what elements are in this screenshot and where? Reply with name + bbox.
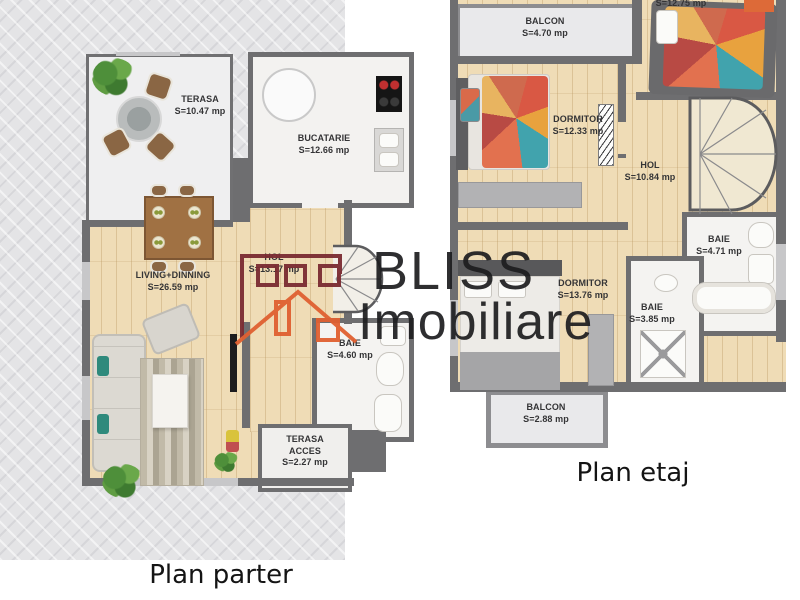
plate bbox=[152, 206, 165, 219]
living-plant bbox=[102, 464, 144, 498]
room-area: S=4.71 mp bbox=[690, 246, 748, 258]
window bbox=[776, 244, 786, 300]
wall-segment bbox=[456, 222, 628, 230]
kitchen-sink-bowl bbox=[379, 133, 399, 148]
room-name: DORMITOR bbox=[542, 114, 614, 126]
bed-duvet bbox=[663, 6, 766, 89]
room-label-dormitor-1233: DORMITOR S=12.33 mp bbox=[542, 114, 614, 137]
room-area: S=10.84 mp bbox=[616, 172, 684, 184]
bed-duvet bbox=[482, 76, 548, 168]
room-area: S=10.47 mp bbox=[164, 106, 236, 118]
bed-pillow bbox=[656, 10, 678, 44]
terrace-window bbox=[116, 52, 180, 56]
shower bbox=[640, 330, 686, 378]
wardrobe bbox=[458, 182, 582, 208]
room-name: TERASA bbox=[164, 94, 236, 106]
coffee-table bbox=[152, 374, 188, 428]
kitchen-table bbox=[262, 68, 316, 122]
room-name: DORMITOR bbox=[548, 278, 618, 290]
dining-chair bbox=[178, 184, 196, 197]
room-label-bucatarie: BUCATARIE S=12.66 mp bbox=[286, 133, 362, 156]
room-name: LIVING+DINNING bbox=[106, 270, 240, 282]
dresser-orange bbox=[744, 0, 774, 12]
room-area: S=26.59 mp bbox=[106, 282, 240, 294]
room-label-hol-etaj: HOL S=10.84 mp bbox=[616, 160, 684, 183]
bathtub bbox=[692, 282, 776, 314]
decor-toy bbox=[226, 430, 239, 452]
bed-blanket bbox=[460, 352, 560, 390]
watermark-brand-line1: BLISS bbox=[372, 244, 535, 298]
room-name: BAIE bbox=[624, 302, 680, 314]
room-label-terasa-acces: TERASA ACCES S=2.27 mp bbox=[264, 434, 346, 469]
floorplan-canvas: TERASA S=10.47 mp BUCATARIE S=12.66 mp L… bbox=[0, 0, 800, 600]
toilet bbox=[748, 222, 774, 248]
living-plant bbox=[214, 452, 240, 472]
cooktop bbox=[376, 76, 402, 112]
kitchen-sink-bowl bbox=[379, 152, 399, 167]
bathroom-sink bbox=[654, 274, 678, 292]
plan-parter-title: Plan parter bbox=[118, 560, 324, 590]
room-label-dormitor-cut: S=12.75 mp bbox=[646, 0, 716, 10]
watermark-brand-line2: Imobiliare bbox=[358, 296, 593, 348]
terrace-plant bbox=[92, 58, 136, 96]
room-label-terasa: TERASA S=10.47 mp bbox=[164, 94, 236, 117]
room-name: BAIE bbox=[690, 234, 748, 246]
plate bbox=[188, 236, 201, 249]
bliss-logo-house-icon bbox=[234, 246, 358, 350]
wall-segment bbox=[82, 220, 90, 486]
bidet bbox=[374, 394, 402, 432]
dining-chair bbox=[150, 184, 168, 197]
sofa-pillow bbox=[97, 414, 109, 434]
wall-segment bbox=[233, 158, 250, 222]
room-area: S=12.33 mp bbox=[542, 126, 614, 138]
door-gap bbox=[618, 122, 626, 154]
room-label-balcon-top: BALCON S=4.70 mp bbox=[495, 16, 595, 39]
room-area: S=3.85 mp bbox=[624, 314, 680, 326]
room-name: BALCON bbox=[495, 16, 595, 28]
staircase-etaj-icon bbox=[688, 96, 780, 216]
room-name: HOL bbox=[616, 160, 684, 172]
room-label-living: LIVING+DINNING S=26.59 mp bbox=[106, 270, 240, 293]
wall-pillar bbox=[348, 430, 386, 472]
room-label-balcon-bottom: BALCON S=2.88 mp bbox=[500, 402, 592, 425]
wall-segment bbox=[456, 56, 642, 64]
kitchen-door-gap bbox=[302, 200, 338, 208]
plan-etaj-title: Plan etaj bbox=[548, 458, 718, 488]
window bbox=[82, 376, 90, 420]
room-area: S=12.75 mp bbox=[646, 0, 716, 10]
room-area: S=4.60 mp bbox=[318, 350, 382, 362]
bed-pillow bbox=[460, 88, 480, 122]
room-name: TERASA ACCES bbox=[275, 434, 335, 457]
sofa-pillow bbox=[97, 356, 109, 376]
room-label-baie-471: BAIE S=4.71 mp bbox=[690, 234, 748, 257]
plate bbox=[188, 206, 201, 219]
room-label-baie-385: BAIE S=3.85 mp bbox=[624, 302, 680, 325]
sofa bbox=[92, 334, 146, 472]
room-area: S=2.27 mp bbox=[264, 457, 346, 469]
bathroom-sink bbox=[748, 254, 774, 284]
wall-segment bbox=[632, 0, 642, 64]
room-name: BUCATARIE bbox=[286, 133, 362, 145]
room-name: BALCON bbox=[500, 402, 592, 414]
dining-table bbox=[144, 196, 214, 260]
plate bbox=[152, 236, 165, 249]
room-area: S=4.70 mp bbox=[495, 28, 595, 40]
room-area: S=12.66 mp bbox=[286, 145, 362, 157]
window bbox=[82, 262, 90, 300]
room-area: S=2.88 mp bbox=[500, 414, 592, 426]
